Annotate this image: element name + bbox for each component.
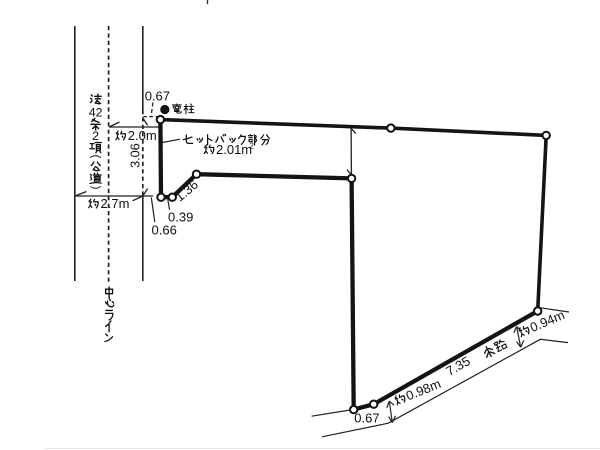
svg-text:(: ( (89, 154, 102, 158)
svg-text:2.7m: 2.7m (101, 196, 130, 211)
svg-text:): ) (89, 186, 102, 190)
svg-text:2.0m: 2.0m (128, 128, 157, 143)
svg-text:0.66: 0.66 (152, 223, 177, 238)
svg-text:2: 2 (250, 142, 255, 151)
svg-text:2: 2 (92, 129, 99, 143)
svg-text:0.67: 0.67 (145, 89, 170, 104)
svg-text:0.67: 0.67 (354, 410, 379, 425)
svg-text:42: 42 (89, 105, 103, 119)
svg-text:3.06: 3.06 (128, 143, 142, 168)
svg-text:2.01m: 2.01m (216, 142, 252, 157)
